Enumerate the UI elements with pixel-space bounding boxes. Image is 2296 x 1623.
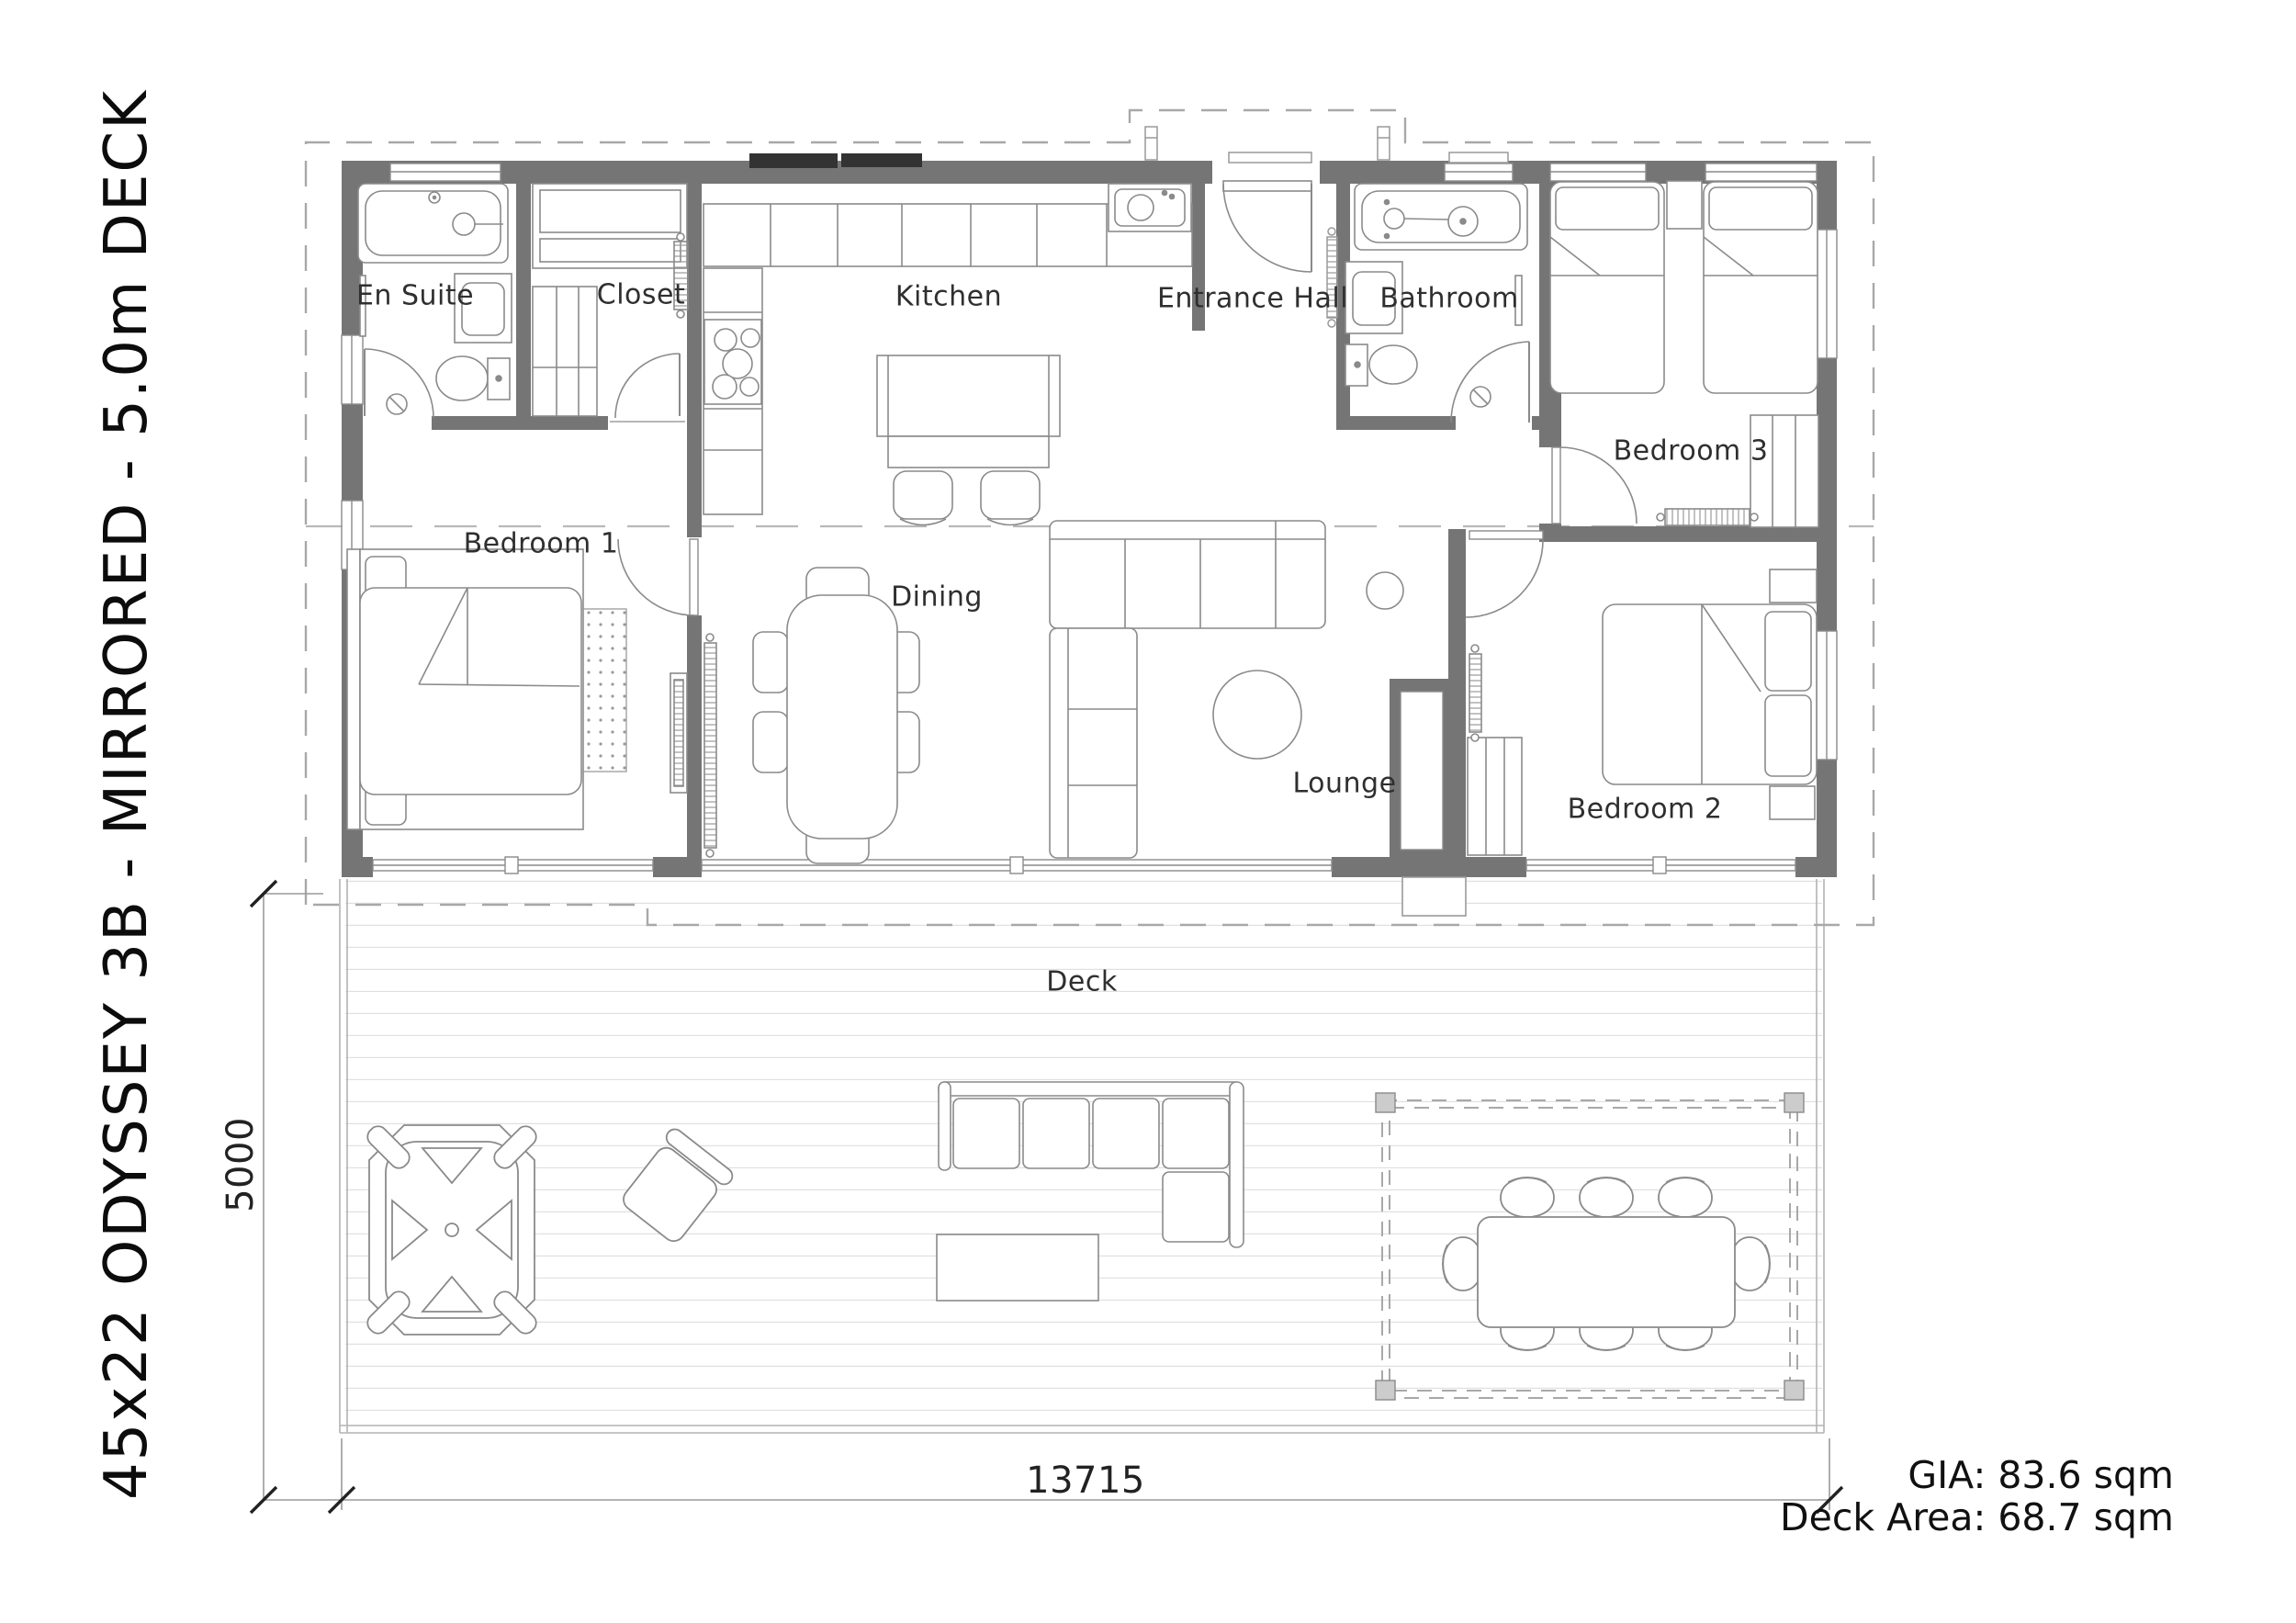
bedroom2-wardrobe (1468, 738, 1522, 855)
room-label-entrance-hall: Entrance Hall (1157, 283, 1348, 315)
bedroom1-radiator (670, 673, 687, 793)
bedroom3-radiator (1657, 509, 1758, 525)
bathroom-canopy (1449, 152, 1508, 163)
room-label-bathroom: Bathroom (1379, 283, 1518, 315)
room-label-closet: Closet (597, 279, 686, 311)
deck-coffee-table (937, 1234, 1098, 1301)
bedroom1-furniture (347, 549, 687, 829)
kitchen-window-band-2 (841, 153, 922, 167)
bathroom-tub (1355, 184, 1527, 250)
wall-lamp-1 (1145, 127, 1157, 160)
toilet (436, 356, 510, 400)
area-summary: GIA: 83.6 sqm Deck Area: 68.7 sqm (1780, 1454, 2174, 1538)
single-bed-1 (1550, 182, 1664, 393)
room-label-bedroom-3: Bedroom 3 (1614, 435, 1769, 468)
bathroom-door (1451, 342, 1529, 423)
bedroom1-rug (581, 609, 626, 772)
entrance-canopy (1229, 152, 1311, 163)
double-bed-2 (1603, 604, 1817, 784)
wardrobe-top (533, 184, 687, 268)
single-bed-2 (1704, 182, 1818, 393)
window-bathroom-top (1445, 163, 1513, 181)
round-coffee-table (1213, 671, 1301, 759)
drawing-title: 45x22 ODYSSEY 3B - MIRRORED - 5.0m DECK (93, 89, 161, 1500)
floor-plan-canvas (0, 0, 2296, 1623)
bathroom-toilet (1345, 344, 1417, 386)
closet-door (610, 354, 685, 422)
lounge-niche-interior (1401, 692, 1443, 850)
deck-area-label: Deck Area: 68.7 sqm (1780, 1496, 2174, 1538)
bedroom3-furniture (1550, 181, 1818, 527)
outdoor-dining-table (1478, 1217, 1735, 1327)
nightstand-bottom (1770, 786, 1815, 819)
bedroom2-door (1466, 531, 1543, 617)
nightstand-top (1770, 569, 1817, 603)
nightstand (1667, 181, 1702, 229)
room-label-en-suite: En Suite (356, 280, 474, 312)
window-bedroom3-right (1817, 230, 1837, 358)
bedroom3-wardrobe (1750, 415, 1818, 527)
hot-tub (364, 1122, 540, 1337)
island-stool-2 (981, 471, 1040, 525)
bathtub (358, 184, 508, 263)
window-bedroom3-top-2 (1705, 163, 1817, 181)
front-door (1223, 181, 1311, 272)
shelving-column (533, 287, 597, 416)
bathroom-plant-icon (1470, 387, 1491, 407)
deck-label: Deck (1046, 966, 1117, 998)
kitchen-window-band (749, 153, 838, 168)
dining-furniture (704, 568, 919, 863)
dimension-depth-label: 5000 (219, 1117, 262, 1212)
room-label-bedroom-1: Bedroom 1 (464, 528, 619, 560)
window-bedroom3-top-1 (1550, 163, 1646, 181)
window-ensuite-top (390, 163, 501, 181)
kitchen-island (877, 355, 1060, 468)
room-label-dining: Dining (891, 581, 983, 614)
wall-lamp-2 (1378, 127, 1390, 160)
room-label-bedroom-2: Bedroom 2 (1568, 794, 1723, 826)
island-stool-1 (894, 471, 952, 525)
bottom-glazing (373, 857, 1795, 873)
glazing-main-sliders (702, 857, 1332, 873)
kitchen-sink (1109, 184, 1191, 231)
dining-table (787, 595, 897, 839)
room-label-lounge: Lounge (1292, 768, 1396, 800)
plant-icon (387, 394, 407, 414)
kitchen-fixtures (703, 184, 1192, 525)
bedroom1-door (618, 539, 698, 615)
niche-step (1402, 877, 1466, 916)
bedroom2-radiator (1469, 645, 1481, 741)
dimension-width-label: 13715 (1026, 1460, 1145, 1502)
lounge-furniture (1050, 521, 1403, 858)
room-label-kitchen: Kitchen (895, 281, 1002, 313)
window-bedroom2-right (1817, 631, 1837, 760)
side-table (1367, 572, 1403, 609)
window-ensuite-left (342, 335, 363, 404)
double-bed-1 (347, 549, 583, 829)
gia-label: GIA: 83.6 sqm (1780, 1454, 2174, 1496)
glazing-bedroom1 (373, 857, 653, 873)
dining-radiator (704, 634, 716, 857)
hob (704, 320, 761, 404)
glazing-bedroom2 (1526, 857, 1795, 873)
